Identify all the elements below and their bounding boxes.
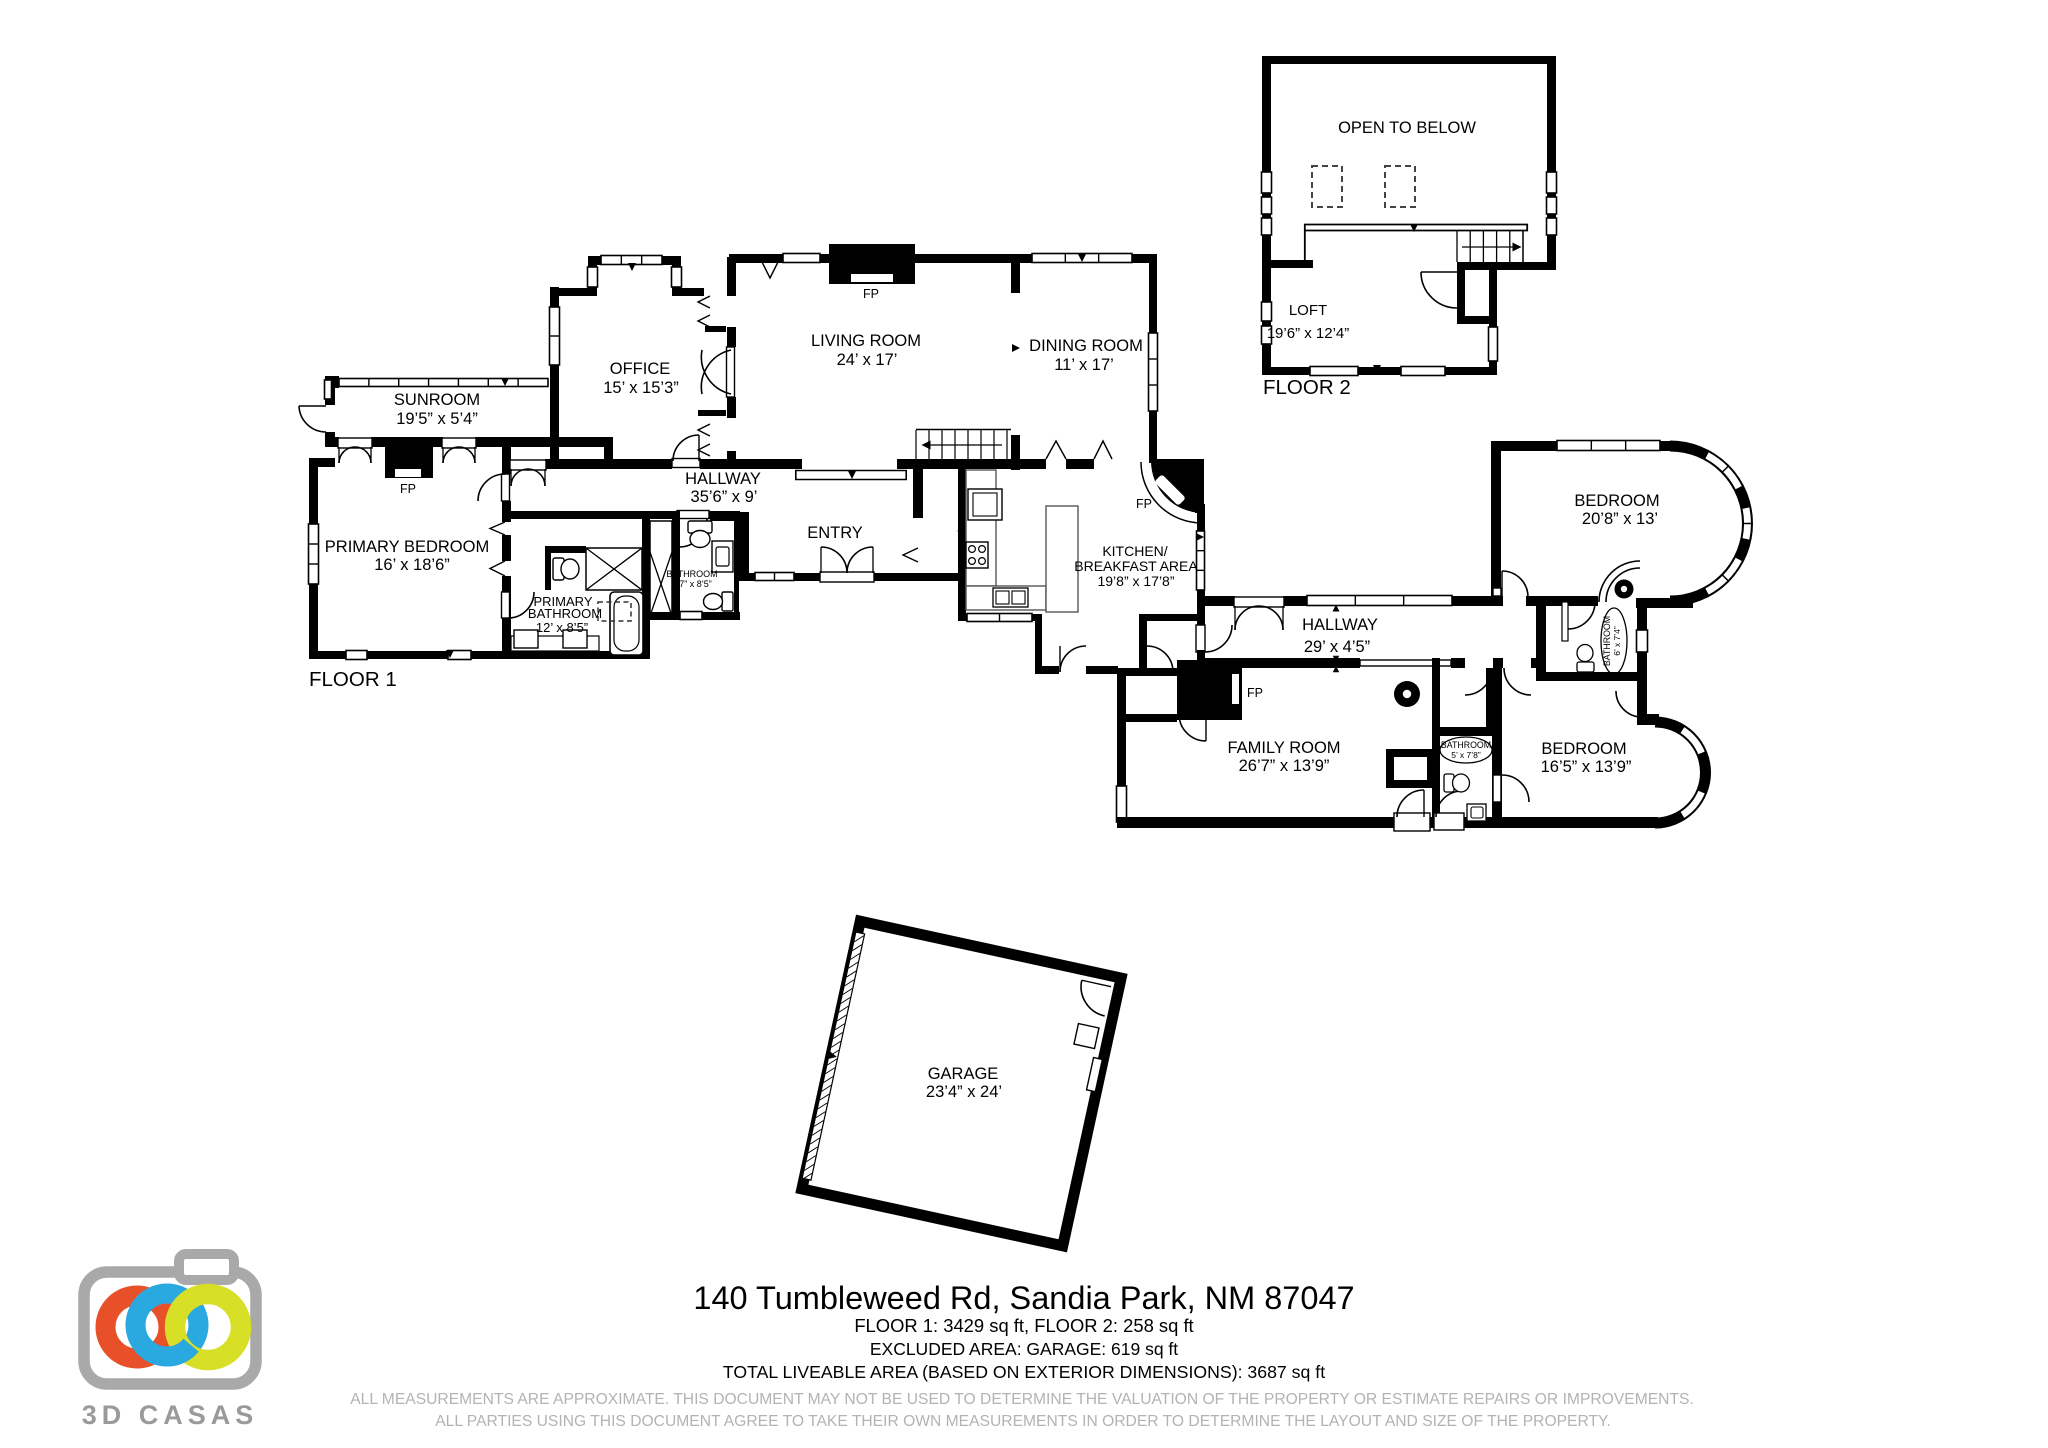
svg-text:KITCHEN/: KITCHEN/ <box>1102 543 1167 559</box>
svg-text:15’ x 15’3”: 15’ x 15’3” <box>603 379 679 397</box>
svg-text:12’ x 8’5”: 12’ x 8’5” <box>536 620 588 635</box>
svg-text:TOTAL LIVEABLE AREA (BASED ON: TOTAL LIVEABLE AREA (BASED ON EXTERIOR D… <box>723 1362 1325 1382</box>
svg-text:PRIMARY BEDROOM: PRIMARY BEDROOM <box>325 538 489 556</box>
svg-text:DINING ROOM: DINING ROOM <box>1029 337 1143 355</box>
svg-text:35’6” x 9’: 35’6” x 9’ <box>691 488 758 506</box>
svg-text:ENTRY: ENTRY <box>807 524 863 542</box>
svg-text:FLOOR 1: FLOOR 1 <box>309 668 397 691</box>
svg-text:11’ x 17’: 11’ x 17’ <box>1054 356 1114 374</box>
svg-text:BATHROOM: BATHROOM <box>666 569 717 579</box>
svg-text:FLOOR 1: 3429 sq ft, FLOOR 2:: FLOOR 1: 3429 sq ft, FLOOR 2: 258 sq ft <box>854 1315 1193 1336</box>
svg-text:23’4” x 24’: 23’4” x 24’ <box>926 1083 1002 1101</box>
svg-text:5’ x 7’8”: 5’ x 7’8” <box>1451 750 1481 760</box>
svg-text:19’6” x 12’4”: 19’6” x 12’4” <box>1267 325 1350 342</box>
svg-text:FP: FP <box>400 482 416 496</box>
svg-text:BATHROOM: BATHROOM <box>528 606 602 621</box>
svg-text:ALL PARTIES USING THIS DOCUMEN: ALL PARTIES USING THIS DOCUMENT AGREE TO… <box>435 1413 1611 1430</box>
svg-text:16’5” x 13’9”: 16’5” x 13’9” <box>1541 758 1632 776</box>
svg-text:20’8” x 13’: 20’8” x 13’ <box>1582 510 1658 528</box>
svg-text:26’7” x 13’9”: 26’7” x 13’9” <box>1239 757 1330 775</box>
svg-text:6’ x 7’4”: 6’ x 7’4” <box>1612 626 1622 656</box>
svg-text:7’7” x 8’5”: 7’7” x 8’5” <box>672 579 712 589</box>
svg-text:FAMILY ROOM: FAMILY ROOM <box>1227 739 1340 757</box>
svg-text:FP: FP <box>1136 497 1152 511</box>
svg-text:BATHROOM: BATHROOM <box>1602 616 1612 666</box>
svg-text:140 Tumbleweed Rd, Sandia Park: 140 Tumbleweed Rd, Sandia Park, NM 87047 <box>693 1280 1354 1316</box>
svg-text:GARAGE: GARAGE <box>928 1065 999 1083</box>
svg-text:LIVING ROOM: LIVING ROOM <box>811 332 921 350</box>
svg-text:16’ x 18’6”: 16’ x 18’6” <box>374 556 450 574</box>
svg-text:HALLWAY: HALLWAY <box>685 470 761 488</box>
svg-text:29’ x 4’5”: 29’ x 4’5” <box>1304 638 1370 656</box>
svg-text:BEDROOM: BEDROOM <box>1574 492 1659 510</box>
svg-text:EXCLUDED AREA: GARAGE: 619 sq: EXCLUDED AREA: GARAGE: 619 sq ft <box>870 1339 1178 1359</box>
svg-text:BEDROOM: BEDROOM <box>1541 740 1626 758</box>
svg-text:BREAKFAST AREA: BREAKFAST AREA <box>1074 558 1198 574</box>
svg-text:SUNROOM: SUNROOM <box>394 391 480 409</box>
svg-text:BATHROOM: BATHROOM <box>1441 740 1491 750</box>
svg-text:FP: FP <box>1247 686 1263 700</box>
svg-text:OFFICE: OFFICE <box>610 360 671 378</box>
svg-text:FLOOR 2: FLOOR 2 <box>1263 376 1351 399</box>
svg-text:24’ x 17’: 24’ x 17’ <box>837 351 898 369</box>
svg-text:19’5” x 5’4”: 19’5” x 5’4” <box>396 410 478 428</box>
svg-text:FP: FP <box>863 287 879 301</box>
svg-text:HALLWAY: HALLWAY <box>1302 616 1378 634</box>
svg-text:LOFT: LOFT <box>1289 302 1327 319</box>
svg-text:OPEN TO BELOW: OPEN TO BELOW <box>1338 119 1476 137</box>
svg-text:3D CASAS: 3D CASAS <box>82 1400 259 1430</box>
svg-text:19’8” x 17’8”: 19’8” x 17’8” <box>1097 573 1174 589</box>
svg-text:ALL MEASUREMENTS ARE APPROXIMA: ALL MEASUREMENTS ARE APPROXIMATE. THIS D… <box>350 1391 1694 1408</box>
